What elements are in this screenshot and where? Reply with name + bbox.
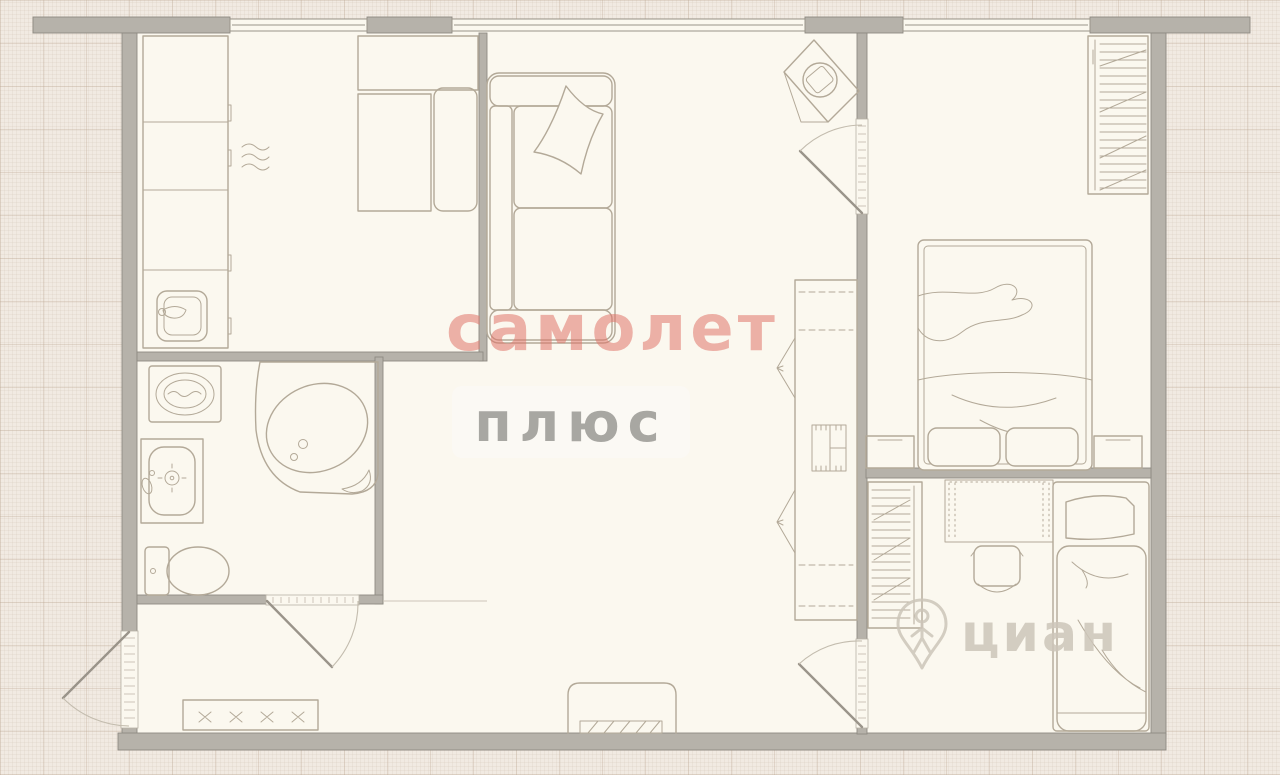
double-bed (918, 240, 1092, 470)
brand-watermark-primary-text: самолет (446, 292, 779, 366)
kids-pillow (1066, 496, 1134, 540)
wall-bathroom-bottom-left (137, 595, 267, 604)
kitchen-window (230, 19, 367, 31)
wall-bathroom-bottom-right (358, 595, 383, 604)
wall-kitchen-bottom (137, 352, 483, 361)
entrance-door (63, 631, 138, 728)
entrance-door-swing (63, 698, 129, 726)
wall-top-pier-1 (367, 17, 452, 33)
wall-top-pier-2 (805, 17, 903, 33)
pillow-left (928, 428, 1000, 466)
windows (230, 19, 1090, 31)
living-room-window (452, 19, 805, 31)
corner-watermark-text: циан (961, 604, 1119, 664)
pillow-right (1006, 428, 1078, 466)
wall-divider-middle (857, 213, 867, 640)
bedroom-window (903, 19, 1090, 31)
corner-watermark: циан (893, 594, 1119, 674)
brand-watermark-primary: самолет (446, 292, 779, 366)
brand-watermark-secondary-text: плюс (474, 391, 667, 454)
floorplan-canvas: самолет плюс циан (0, 0, 1280, 775)
wall-divider-upper (857, 33, 867, 120)
wall-left (122, 33, 137, 632)
wall-top-left (33, 17, 230, 33)
wall-right (1151, 33, 1166, 737)
brand-watermark-secondary: плюс (452, 386, 690, 458)
map-pin-person-icon (893, 594, 951, 674)
wall-top-right (1090, 17, 1250, 33)
entrance-door-leaf (63, 632, 129, 698)
wall-bottom (118, 733, 1166, 750)
